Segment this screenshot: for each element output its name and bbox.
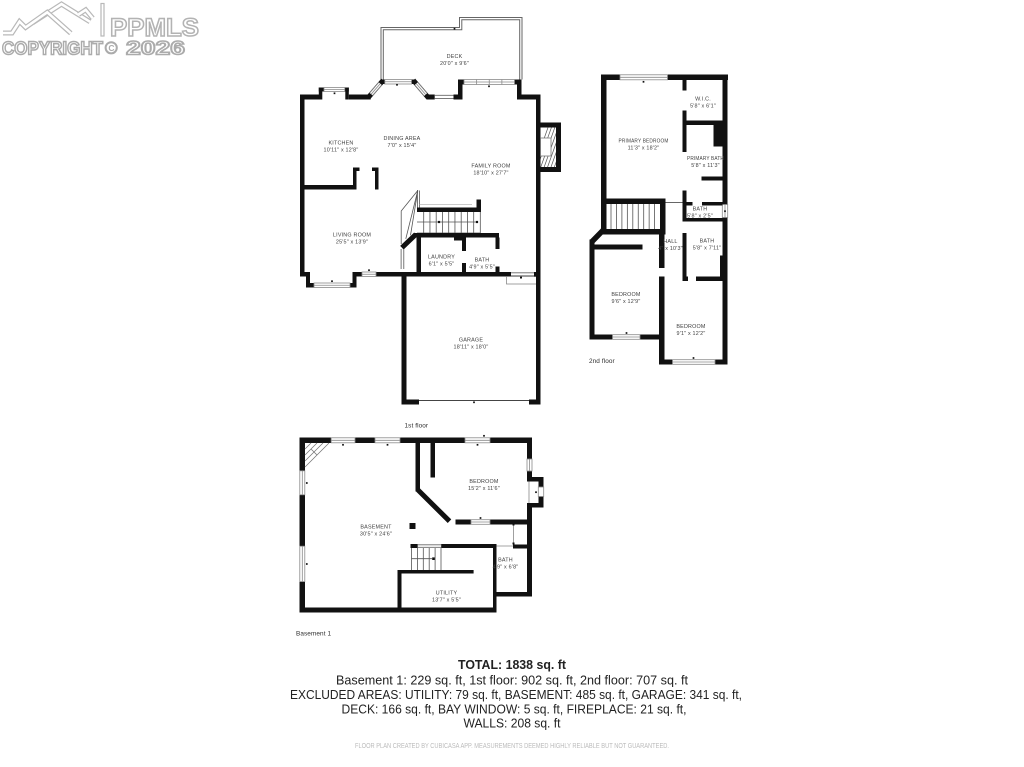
svg-text:10'11" x 12'8": 10'11" x 12'8" (324, 148, 359, 154)
svg-text:LIVING ROOM: LIVING ROOM (333, 233, 371, 239)
svg-text:5'8" x 2'5": 5'8" x 2'5" (687, 214, 713, 220)
svg-text:BATH: BATH (693, 207, 708, 213)
svg-text:PRIMARY BATH: PRIMARY BATH (687, 156, 724, 162)
svg-text:20'0" x 9'6": 20'0" x 9'6" (440, 61, 469, 67)
svg-text:DECK: 166 sq. ft, BAY WINDOW:: DECK: 166 sq. ft, BAY WINDOW: 5 sq. ft, … (342, 703, 687, 717)
svg-text:BEDROOM: BEDROOM (676, 324, 706, 330)
svg-text:18'10" x 27'7": 18'10" x 27'7" (473, 171, 508, 177)
svg-text:WALLS: 208 sq. ft: WALLS: 208 sq. ft (464, 717, 561, 731)
svg-text:DECK: DECK (447, 54, 463, 60)
svg-text:UTILITY: UTILITY (436, 591, 458, 597)
svg-text:4" x 10'3": 4" x 10'3" (658, 246, 683, 252)
svg-text:HALL: HALL (663, 239, 677, 245)
svg-text:BEDROOM: BEDROOM (611, 292, 641, 298)
svg-text:Basement 1: Basement 1 (296, 631, 331, 638)
svg-text:9'6" x 12'9": 9'6" x 12'9" (612, 299, 641, 305)
svg-text:BATH: BATH (498, 558, 513, 564)
svg-text:4'9" x 5'5": 4'9" x 5'5" (469, 265, 495, 271)
svg-text:Basement 1: 229 sq. ft, 1st fl: Basement 1: 229 sq. ft, 1st floor: 902 s… (336, 674, 688, 688)
svg-text:TOTAL: 1838 sq. ft: TOTAL: 1838 sq. ft (458, 657, 567, 672)
svg-text:KITCHEN: KITCHEN (328, 141, 353, 147)
svg-text:9'1" x 12'2": 9'1" x 12'2" (677, 331, 706, 337)
svg-text:11'3" x 18'2": 11'3" x 18'2" (628, 146, 660, 152)
svg-text:5'8" x 6'1": 5'8" x 6'1" (690, 104, 716, 110)
svg-text:6'1" x 5'5": 6'1" x 5'5" (429, 262, 455, 268)
svg-text:BEDROOM: BEDROOM (469, 479, 499, 485)
svg-text:EXCLUDED AREAS: UTILITY: 79 sq: EXCLUDED AREAS: UTILITY: 79 sq. ft, BASE… (290, 688, 742, 702)
svg-text:13'7" x 5'5": 13'7" x 5'5" (432, 598, 461, 604)
svg-text:5'8" x 7'11": 5'8" x 7'11" (693, 246, 722, 252)
svg-text:1st floor: 1st floor (405, 423, 429, 430)
svg-text:W.I.C.: W.I.C. (695, 97, 711, 103)
svg-text:COPYRIGHT: COPYRIGHT (2, 39, 103, 59)
svg-text:2026: 2026 (126, 39, 185, 60)
svg-text:2nd floor: 2nd floor (589, 358, 616, 365)
svg-text:25'5" x 13'9": 25'5" x 13'9" (336, 240, 368, 246)
svg-text:7'0" x 15'4": 7'0" x 15'4" (388, 143, 417, 149)
svg-text:DINING AREA: DINING AREA (384, 136, 421, 142)
svg-text:4'9" x 6'8": 4'9" x 6'8" (493, 565, 519, 571)
svg-text:C: C (108, 43, 114, 53)
svg-text:PRIMARY BEDROOM: PRIMARY BEDROOM (619, 139, 669, 145)
svg-text:18'11" x 18'0": 18'11" x 18'0" (454, 345, 489, 351)
svg-text:GARAGE: GARAGE (459, 338, 483, 344)
svg-text:15'2" x 11'6": 15'2" x 11'6" (468, 486, 500, 492)
svg-text:5'8" x 11'3": 5'8" x 11'3" (691, 163, 720, 169)
svg-text:BATH: BATH (475, 258, 490, 264)
svg-text:LAUNDRY: LAUNDRY (428, 255, 455, 261)
svg-text:30'5" x 24'6": 30'5" x 24'6" (360, 532, 392, 538)
svg-text:BASEMENT: BASEMENT (360, 525, 392, 531)
svg-text:FLOOR PLAN CREATED BY CUBICASA: FLOOR PLAN CREATED BY CUBICASA APP. MEAS… (355, 743, 669, 750)
svg-text:FAMILY ROOM: FAMILY ROOM (471, 164, 510, 170)
svg-text:BATH: BATH (700, 239, 715, 245)
